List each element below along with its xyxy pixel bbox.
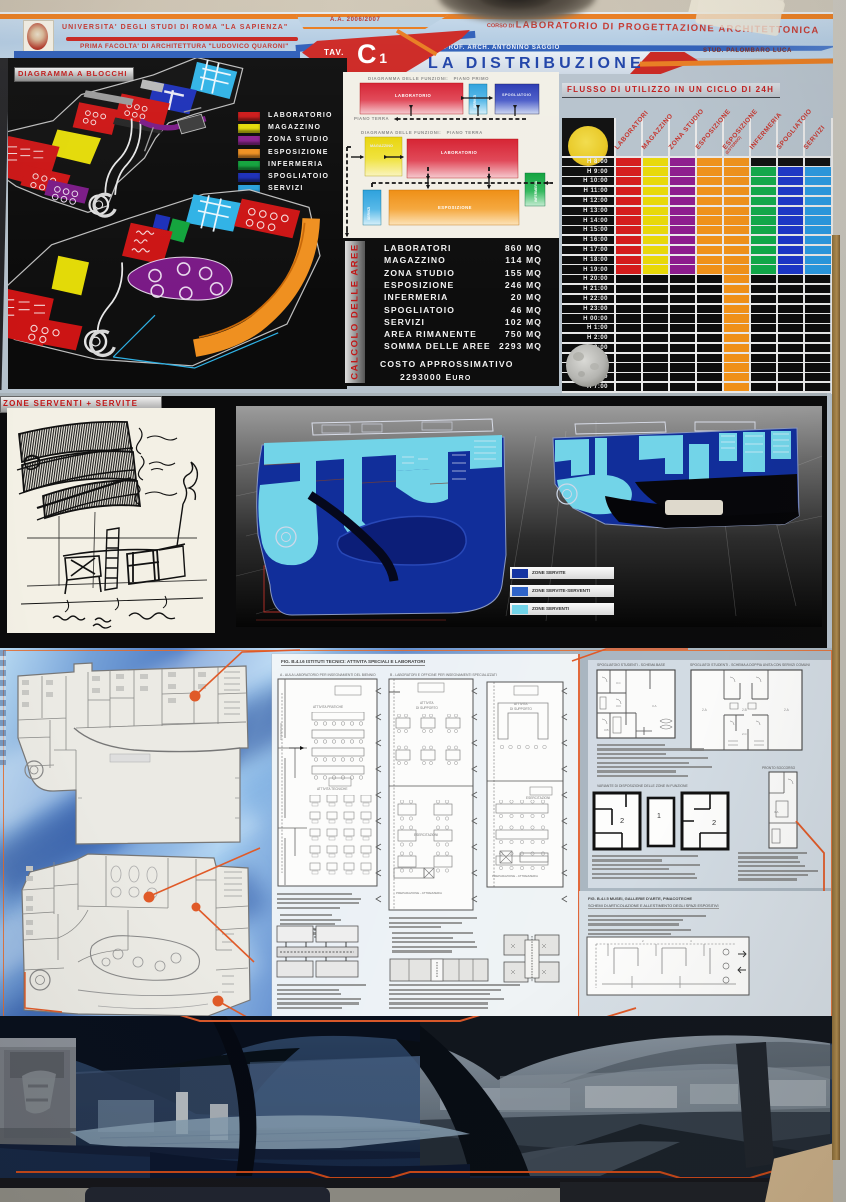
svg-text:LABORATORIO: LABORATORIO	[395, 93, 432, 98]
svg-text:PIANO TERRA: PIANO TERRA	[354, 116, 389, 121]
svg-text:2.B: 2.B	[742, 708, 747, 712]
svg-text:SPOGLIATOIO: SPOGLIATOIO	[502, 93, 531, 97]
svg-text:2: 2	[712, 818, 716, 827]
svg-text:3.A: 3.A	[774, 810, 779, 814]
svg-text:3.B: 3.B	[604, 728, 609, 732]
svg-text:MAGAZZINO: MAGAZZINO	[370, 144, 393, 148]
svg-text:LABORATORIO: LABORATORIO	[441, 150, 478, 155]
svg-text:2: 2	[620, 816, 624, 825]
svg-text:DIAGRAMMA DELLE FUNZIONI: PI: DIAGRAMMA DELLE FUNZIONI: PIANO TERRA	[361, 130, 483, 135]
svg-text:SERVIZI: SERVIZI	[367, 207, 371, 220]
svg-text:DIAGRAMMA DELLE FUNZIONI: PI: DIAGRAMMA DELLE FUNZIONI: PIANO PRIMO	[368, 76, 489, 81]
svg-text:3.A: 3.A	[652, 704, 657, 708]
svg-text:SERVIZI: SERVIZI	[473, 95, 477, 108]
svg-text:ESPOSIZIONE: ESPOSIZIONE	[438, 205, 472, 210]
svg-text:1: 1	[657, 813, 661, 820]
